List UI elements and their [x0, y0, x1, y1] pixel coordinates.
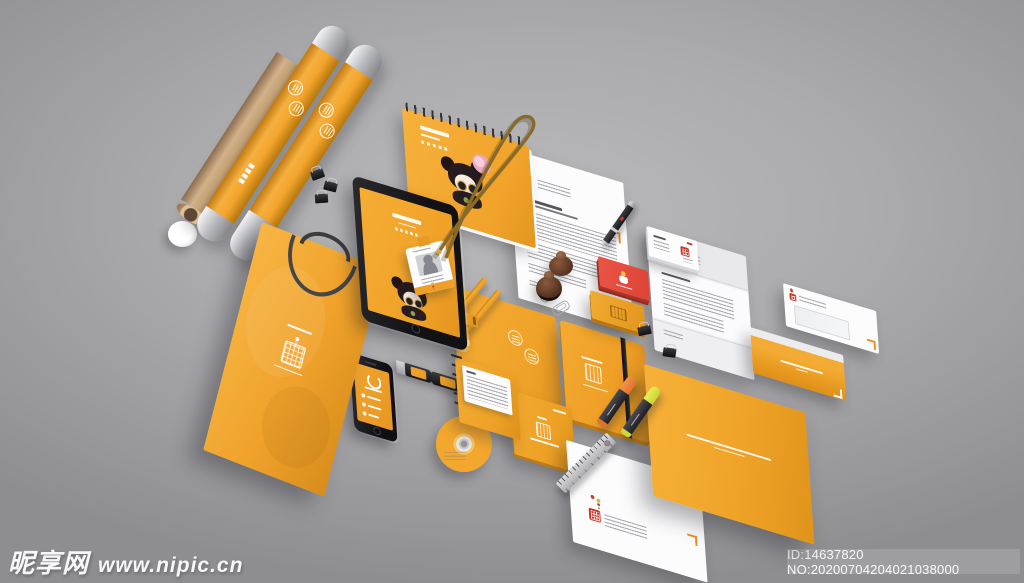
red-seal-logo	[680, 246, 689, 258]
phone-screen	[353, 362, 393, 431]
sleeve-note-card	[462, 365, 513, 416]
embossed-logo	[610, 305, 627, 322]
notebook-logo	[581, 356, 608, 393]
brand-circle-logo	[317, 121, 338, 142]
badge-photo	[415, 251, 443, 277]
lanyard-cord	[0, 0, 1024, 583]
signature-lines	[664, 329, 684, 341]
wooden-stamp	[536, 276, 562, 301]
envelope-text	[780, 360, 822, 374]
white-cap	[168, 221, 197, 247]
binder-clip	[315, 194, 329, 204]
corner-bracket	[687, 533, 697, 546]
usb-label	[411, 366, 427, 380]
watermark-id-bar: ID:14637820 NO:20200704204021038000	[787, 549, 1020, 574]
disc-label-text	[444, 452, 466, 460]
red-seal-logo	[589, 508, 601, 523]
watermark-id-text: ID:14637820 NO:20200704204021038000	[787, 547, 1020, 577]
brand-circle-logo	[316, 100, 337, 121]
watermark-site: 昵享网 www.nipic.cn	[8, 543, 243, 580]
tube-brand-text	[238, 161, 256, 184]
stamp-knob	[544, 271, 554, 280]
case-logo	[535, 415, 551, 440]
pen-logo	[619, 217, 624, 222]
address-window	[794, 305, 850, 341]
screen-title-block	[392, 213, 422, 239]
usb-drive	[396, 360, 432, 384]
brand-circle-logo	[508, 328, 523, 347]
watermark-site-url: www.nipic.cn	[98, 554, 243, 578]
letterhead-address-lines	[537, 179, 570, 198]
calendar-title-block	[420, 125, 450, 151]
badge-clip	[417, 235, 431, 246]
stamp-knob	[556, 251, 566, 260]
corner-bracket	[867, 339, 876, 351]
binder-clip	[637, 325, 652, 337]
binder-clip	[310, 168, 325, 181]
letterhead-address-lines	[604, 514, 647, 540]
usb-label	[440, 376, 456, 390]
brand-circle-logo	[524, 347, 539, 366]
watermark-site-name: 昵享网	[8, 543, 89, 580]
brand-circle-logo	[285, 78, 306, 99]
brand-circle-logo	[286, 98, 307, 119]
shopping-bag	[203, 222, 383, 497]
bag-deco-swirl	[254, 376, 339, 479]
corner-bracket	[833, 387, 842, 399]
branding-mockup-photo: 昵享网 www.nipic.cn ID:14637820 NO:20200704…	[0, 0, 1024, 583]
binder-clip	[662, 347, 676, 358]
folder-slogan	[686, 434, 771, 462]
red-seal-logo	[789, 293, 796, 302]
